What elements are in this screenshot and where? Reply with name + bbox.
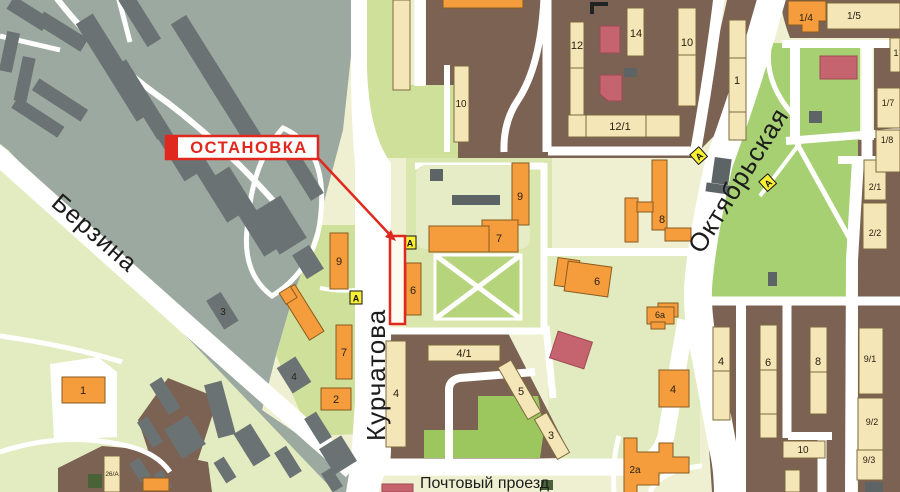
building-1-7 <box>877 88 900 128</box>
building-6-col <box>760 325 777 438</box>
label-building-4-col: 4 <box>718 356 724 368</box>
label-building-14: 14 <box>630 28 642 40</box>
pink-building <box>382 484 413 492</box>
pink-building <box>600 75 622 101</box>
building-strip <box>393 0 410 90</box>
bus-stop-highlight-rect <box>390 236 405 324</box>
label-building-2-1: 2/1 <box>869 182 882 192</box>
label-building-12-1: 12/1 <box>609 121 630 133</box>
label-building-4-right: 4 <box>670 384 676 396</box>
label-building-12: 12 <box>571 40 583 52</box>
building-9-2 <box>858 398 883 456</box>
label-building-3-pochtovy: 3 <box>548 430 554 442</box>
building-top-bar <box>443 0 523 8</box>
label-building-2-2: 2/2 <box>869 228 882 238</box>
bus-marker-letter: А <box>407 239 414 249</box>
callout-box-tab <box>166 136 178 159</box>
street-label-pochtovy: Почтовый проезд <box>420 475 550 492</box>
building-stub <box>785 470 800 492</box>
bus-stop-callout-label: ОСТАНОВКА <box>190 139 307 157</box>
label-building-6a: 6a <box>655 310 665 320</box>
label-building-1-4: 1/4 <box>799 13 813 24</box>
label-building-6-mid: 6 <box>594 276 600 288</box>
label-building-10-top: 10 <box>681 37 693 49</box>
utility-building <box>768 272 777 286</box>
utility-building <box>430 169 443 181</box>
label-building-4-1: 4/1 <box>456 348 471 360</box>
label-building-8-col: 8 <box>815 356 821 368</box>
label-building-9-2: 9/2 <box>866 417 879 427</box>
building-7-east-a <box>429 226 489 252</box>
label-building-1-top: 1 <box>734 75 740 87</box>
label-building-10-col: 10 <box>797 445 809 456</box>
label-building-1-6: 1 <box>893 48 898 58</box>
building-8-bar-b <box>625 198 638 242</box>
label-building-1-7: 1/7 <box>882 98 895 108</box>
label-building-5-pochtovy: 5 <box>518 386 524 398</box>
label-building-1-8: 1/8 <box>881 135 894 145</box>
bus-marker-letter: А <box>353 294 360 304</box>
building-4-col <box>713 327 730 420</box>
label-building-3-gray: 3 <box>220 307 226 318</box>
dark-green-square <box>88 474 102 488</box>
label-building-9-3: 9/3 <box>863 455 876 465</box>
building-6a-tab <box>651 322 665 329</box>
label-building-9-west: 9 <box>336 256 342 268</box>
label-building-7-east: 7 <box>496 233 502 245</box>
building-6-mid-front <box>564 261 612 297</box>
building-8-col <box>810 327 827 414</box>
label-building-8-mid: 8 <box>659 214 665 226</box>
building-2-2 <box>863 203 887 249</box>
label-building-26a: 26/A <box>105 471 119 478</box>
utility-building <box>809 111 822 123</box>
map-viewport[interactable]: 12 14 10 1 12/1 10 9 7 6 8 6a 4 2a 9 7 2… <box>0 0 900 492</box>
label-building-4-pochtovy: 4 <box>393 388 399 400</box>
building-8-link <box>637 202 653 212</box>
label-building-6-east: 6 <box>410 285 416 297</box>
pink-building <box>820 56 857 79</box>
building-sw-orange <box>143 478 169 491</box>
label-building-9-1: 9/1 <box>864 354 877 364</box>
label-building-1-5: 1/5 <box>847 11 861 22</box>
utility-building <box>624 68 637 77</box>
label-building-2a: 2a <box>629 465 641 476</box>
bus-stop-marker-icon: А <box>350 291 362 304</box>
label-building-7-west: 7 <box>341 347 347 359</box>
building-10-top <box>678 8 696 106</box>
label-building-2-west: 2 <box>333 394 339 406</box>
utility-building <box>865 482 883 492</box>
city-map[interactable]: 12 14 10 1 12/1 10 9 7 6 8 6a 4 2a 9 7 2… <box>0 0 900 492</box>
building-1-5 <box>827 3 900 29</box>
utility-building <box>452 195 500 205</box>
label-building-4-gray: 4 <box>291 372 297 383</box>
road-right-vertical <box>851 160 858 492</box>
label-building-6-col: 6 <box>765 357 771 369</box>
label-building-10-mid: 10 <box>455 99 467 110</box>
street-label-kurchatova: Курчатова <box>361 309 391 441</box>
label-building-9-east: 9 <box>517 191 523 203</box>
pink-building <box>600 26 620 53</box>
label-building-1-west: 1 <box>80 385 86 397</box>
